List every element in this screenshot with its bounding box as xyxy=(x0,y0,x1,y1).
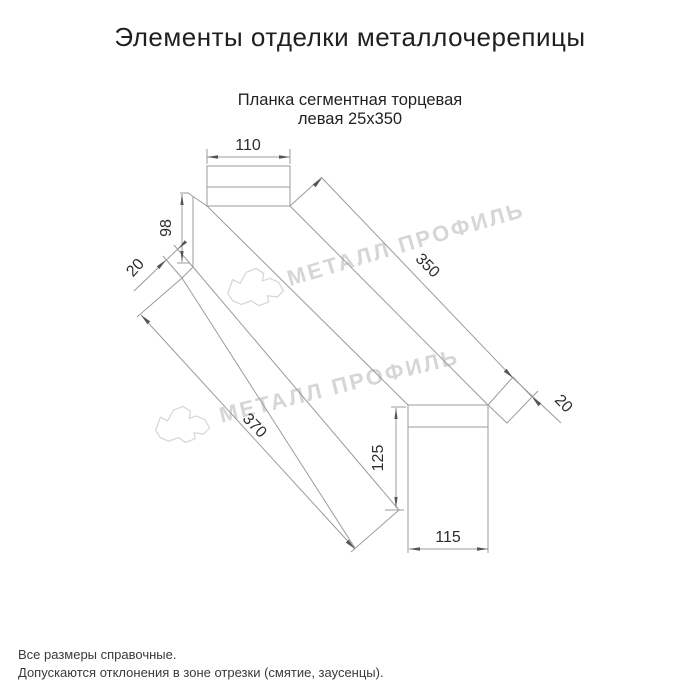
watermark-layer: МЕТАЛЛ ПРОФИЛЬ МЕТАЛЛ ПРОФИЛЬ xyxy=(156,197,528,443)
dim-125-lines xyxy=(385,407,406,510)
dim-label-right-height: 125 xyxy=(370,445,387,472)
arrow-125-top xyxy=(394,408,397,419)
arrow-110-right xyxy=(279,155,290,159)
dimension-labels: 110 98 20 350 20 370 125 115 xyxy=(123,137,575,546)
arrow-110-left xyxy=(207,155,218,159)
watermark-text: МЕТАЛЛ ПРОФИЛЬ xyxy=(284,197,527,291)
arrow-115-right xyxy=(477,547,488,551)
arrow-350-top xyxy=(313,178,322,187)
footer-note-1: Все размеры справочные. xyxy=(18,647,176,662)
dim-98-lines xyxy=(177,193,190,263)
dim-label-left-hem: 20 xyxy=(123,256,148,281)
dim-label-top-flange-width: 110 xyxy=(235,137,261,154)
right-end-flap xyxy=(488,377,538,423)
top-end-profile xyxy=(207,166,290,206)
long-edge-hem xyxy=(182,278,355,548)
dim-label-left-height: 98 xyxy=(158,219,175,237)
bottom-end-cut xyxy=(351,510,399,552)
arrow-125-bottom xyxy=(394,497,397,508)
arrow-98-top xyxy=(180,194,183,205)
arrow-115-left xyxy=(409,547,420,551)
footer-note-2: Допускаются отклонения в зоне отрезки (с… xyxy=(18,665,384,680)
arrow-20-right xyxy=(532,397,541,406)
dim-label-right-flap: 20 xyxy=(551,392,576,417)
top-bend-edge xyxy=(188,193,207,206)
left-hem-edge xyxy=(182,267,193,278)
arrow-98-bottom xyxy=(180,251,183,262)
dim-label-bottom-flange-width: 115 xyxy=(435,529,461,546)
watermark-logo-icon xyxy=(156,406,210,442)
technical-drawing: МЕТАЛЛ ПРОФИЛЬ МЕТАЛЛ ПРОФИЛЬ xyxy=(0,0,700,700)
